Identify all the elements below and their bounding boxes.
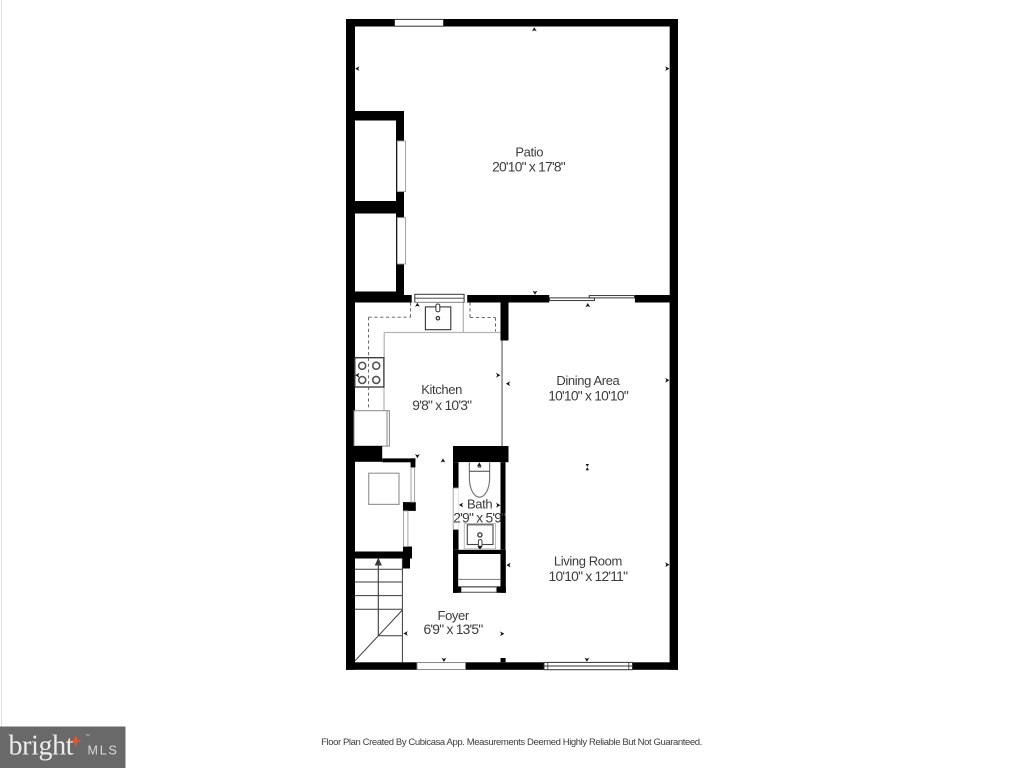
svg-text:bright: bright (9, 731, 74, 762)
svg-text:™: ™ (85, 734, 90, 740)
svg-text:10'10" x 12'11": 10'10" x 12'11" (549, 569, 629, 584)
svg-text:Patio: Patio (515, 145, 543, 160)
svg-text:6'9" x 13'5": 6'9" x 13'5" (424, 622, 484, 637)
svg-text:Foyer: Foyer (438, 608, 470, 623)
svg-text:9'8" x 10'3": 9'8" x 10'3" (412, 398, 472, 413)
svg-text:2'9" x 5'9": 2'9" x 5'9" (453, 510, 506, 525)
svg-text:10'10" x 10'10": 10'10" x 10'10" (548, 389, 629, 404)
svg-text:Bath: Bath (467, 496, 492, 511)
svg-text:20'10" x 17'8": 20'10" x 17'8" (492, 159, 566, 174)
svg-text:Dining Area: Dining Area (556, 373, 620, 388)
svg-text:Kitchen: Kitchen (421, 382, 462, 397)
svg-text:Floor Plan Created By Cubicasa: Floor Plan Created By Cubicasa App. Meas… (321, 737, 702, 748)
svg-text:MLS: MLS (88, 744, 119, 758)
svg-text:Living Room: Living Room (554, 553, 622, 568)
